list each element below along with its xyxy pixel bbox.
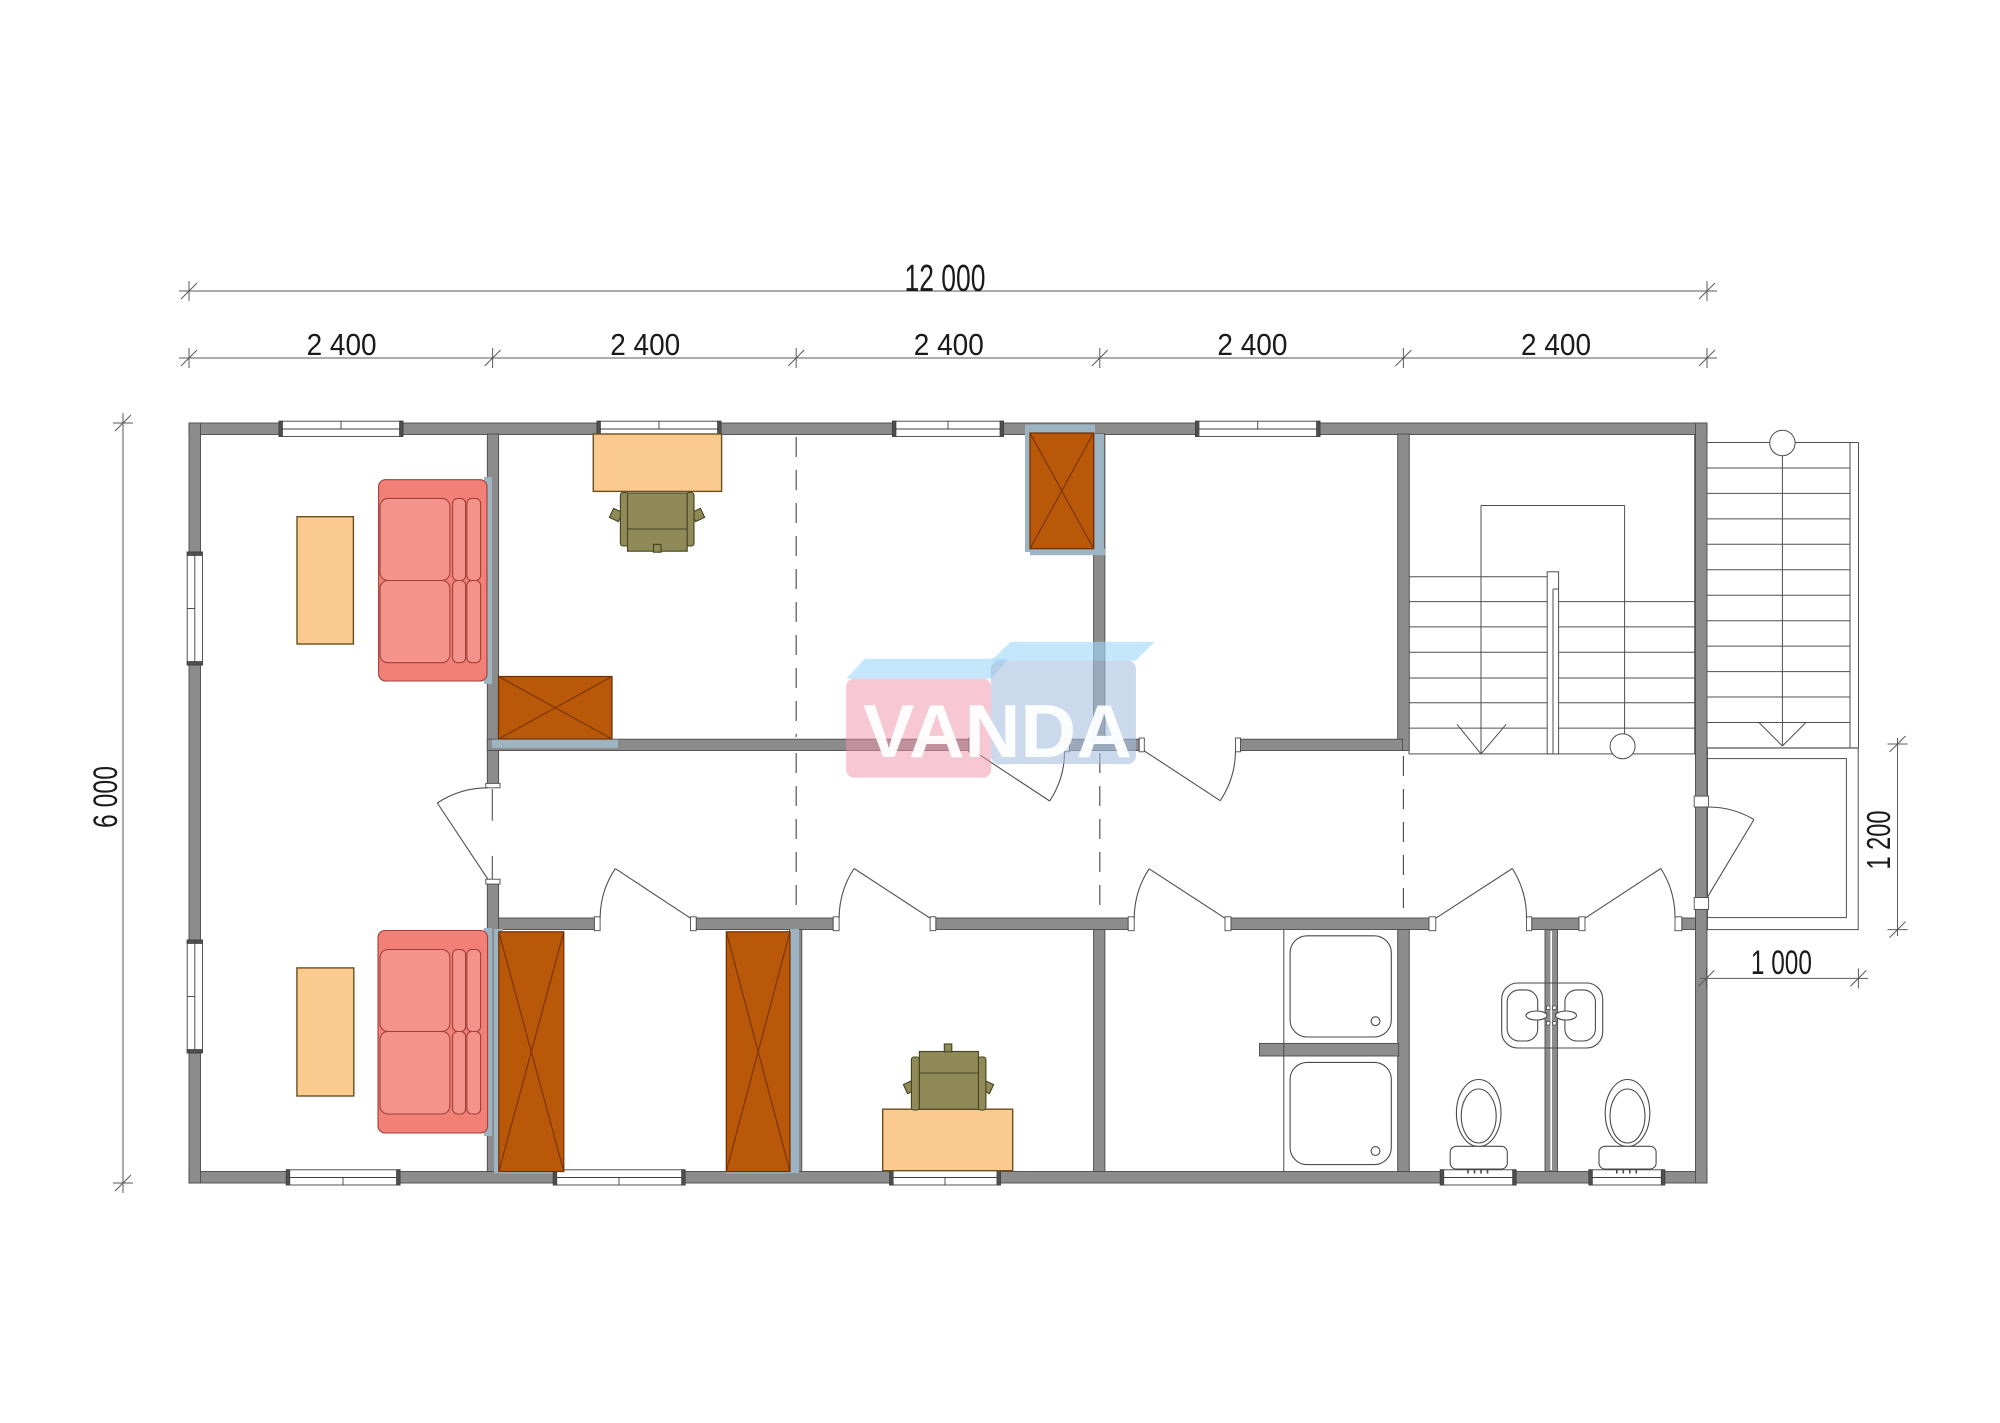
svg-text:2 400: 2 400: [914, 327, 984, 362]
svg-text:2 400: 2 400: [610, 327, 680, 362]
svg-text:2 400: 2 400: [307, 327, 377, 362]
svg-text:12 000: 12 000: [905, 258, 986, 300]
svg-text:2 400: 2 400: [1217, 327, 1287, 362]
svg-text:VANDA: VANDA: [863, 689, 1132, 773]
svg-text:1 000: 1 000: [1751, 944, 1812, 982]
svg-text:2 400: 2 400: [1521, 327, 1591, 362]
svg-text:6 000: 6 000: [87, 766, 125, 828]
svg-text:1 200: 1 200: [1860, 811, 1897, 870]
